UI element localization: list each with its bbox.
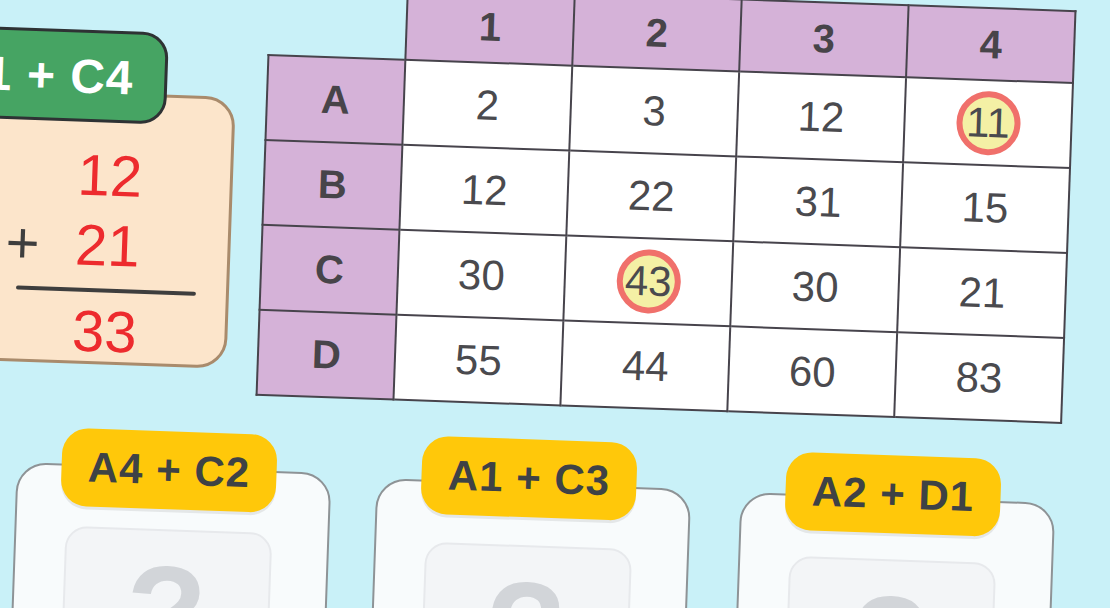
sum-result: 33 xyxy=(13,293,195,369)
cell-a3[interactable]: 12 xyxy=(736,71,906,162)
cell-d4[interactable]: 83 xyxy=(894,332,1064,423)
addend-2: 21 xyxy=(74,212,141,279)
circled-answer-c2[interactable]: 43 xyxy=(615,248,681,314)
cell-c3[interactable]: 30 xyxy=(730,241,900,332)
solved-card: 12 + 21 33 xyxy=(0,86,236,369)
cell-c4[interactable]: 21 xyxy=(897,247,1067,338)
answer-panel-3: ? xyxy=(782,556,996,608)
problem-card-label-3: A2 + D1 xyxy=(811,467,975,521)
row-header-a: A xyxy=(265,55,405,145)
problem-card-label-badge-3: A2 + D1 xyxy=(784,452,1002,537)
cell-a4-value: 11 xyxy=(965,98,1010,147)
cell-c1[interactable]: 30 xyxy=(396,230,566,321)
problem-card-label-1: A4 + C2 xyxy=(87,443,251,497)
solved-card-label: B1 + C4 xyxy=(0,44,135,105)
cell-c2-value: 43 xyxy=(624,256,672,306)
col-header-1: 1 xyxy=(405,0,574,66)
question-mark-3: ? xyxy=(786,558,994,608)
col-header-2: 2 xyxy=(572,0,741,71)
cell-d2[interactable]: 44 xyxy=(560,320,730,411)
solved-card-label-badge: B1 + C4 xyxy=(0,24,169,125)
problem-card-label-2: A1 + C3 xyxy=(447,451,611,505)
addend-1: 12 xyxy=(19,138,201,214)
row-header-d: D xyxy=(257,310,397,400)
number-grid: 1 2 3 4 A 2 3 12 11 B 12 22 31 15 C 30 xyxy=(256,0,1077,424)
col-header-4: 4 xyxy=(906,5,1075,83)
addend-2-row: + 21 xyxy=(16,208,198,284)
question-mark-2: ? xyxy=(422,544,630,608)
cell-a1[interactable]: 2 xyxy=(402,60,572,151)
cell-a4[interactable]: 11 xyxy=(903,77,1073,168)
answer-panel-2: ? xyxy=(418,542,632,608)
row-header-c: C xyxy=(260,225,400,315)
cell-b3[interactable]: 31 xyxy=(733,156,903,247)
question-mark-1: ? xyxy=(62,528,270,608)
cell-b4[interactable]: 15 xyxy=(900,162,1070,253)
col-header-3: 3 xyxy=(739,0,908,77)
plus-sign: + xyxy=(4,207,40,278)
cell-b1[interactable]: 12 xyxy=(399,145,569,236)
cell-d3[interactable]: 60 xyxy=(727,326,897,417)
cell-b2[interactable]: 22 xyxy=(566,151,736,242)
cell-c2[interactable]: 43 xyxy=(563,235,733,326)
row-header-b: B xyxy=(263,140,403,230)
cell-d1[interactable]: 55 xyxy=(394,315,564,406)
cell-a2[interactable]: 3 xyxy=(569,66,739,157)
grid-corner xyxy=(268,0,407,60)
answer-panel-1: ? xyxy=(59,526,273,608)
problem-card-label-badge-1: A4 + C2 xyxy=(60,428,278,513)
circled-answer-a4[interactable]: 11 xyxy=(955,90,1021,156)
game-board: B1 + C4 12 + 21 33 1 2 3 4 A 2 xyxy=(0,0,1110,608)
addition-worked-example: 12 + 21 33 xyxy=(13,138,201,370)
problem-card-label-badge-2: A1 + C3 xyxy=(420,436,638,521)
